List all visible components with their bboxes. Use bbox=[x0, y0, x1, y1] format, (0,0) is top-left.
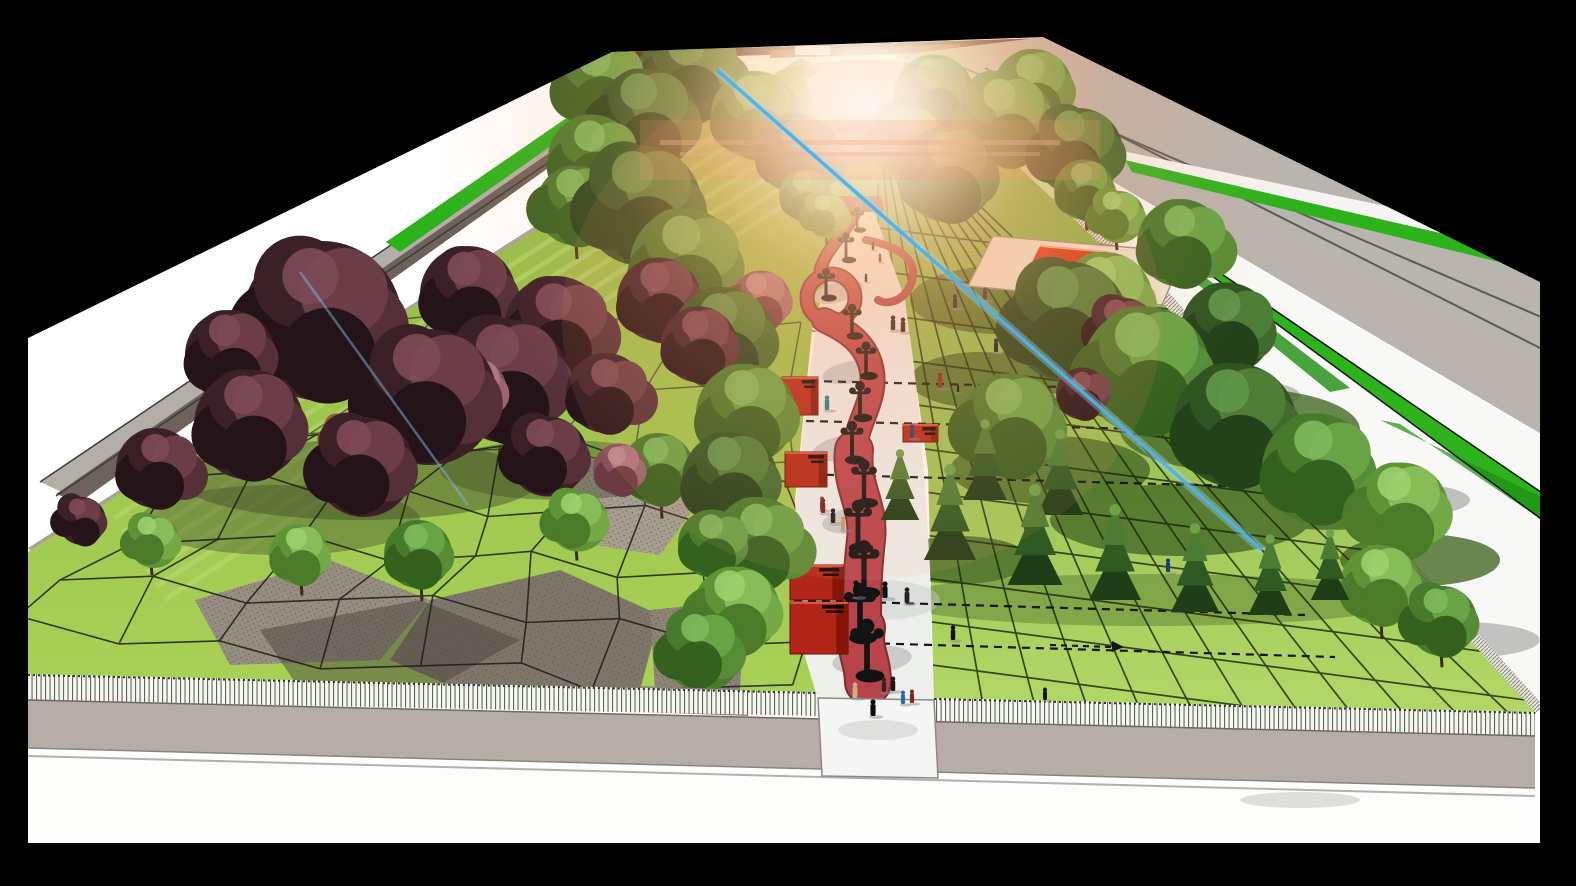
park-perspective-rendering bbox=[0, 0, 1576, 886]
rendering-stage bbox=[0, 0, 1576, 886]
wayfinding-sign bbox=[790, 602, 848, 654]
